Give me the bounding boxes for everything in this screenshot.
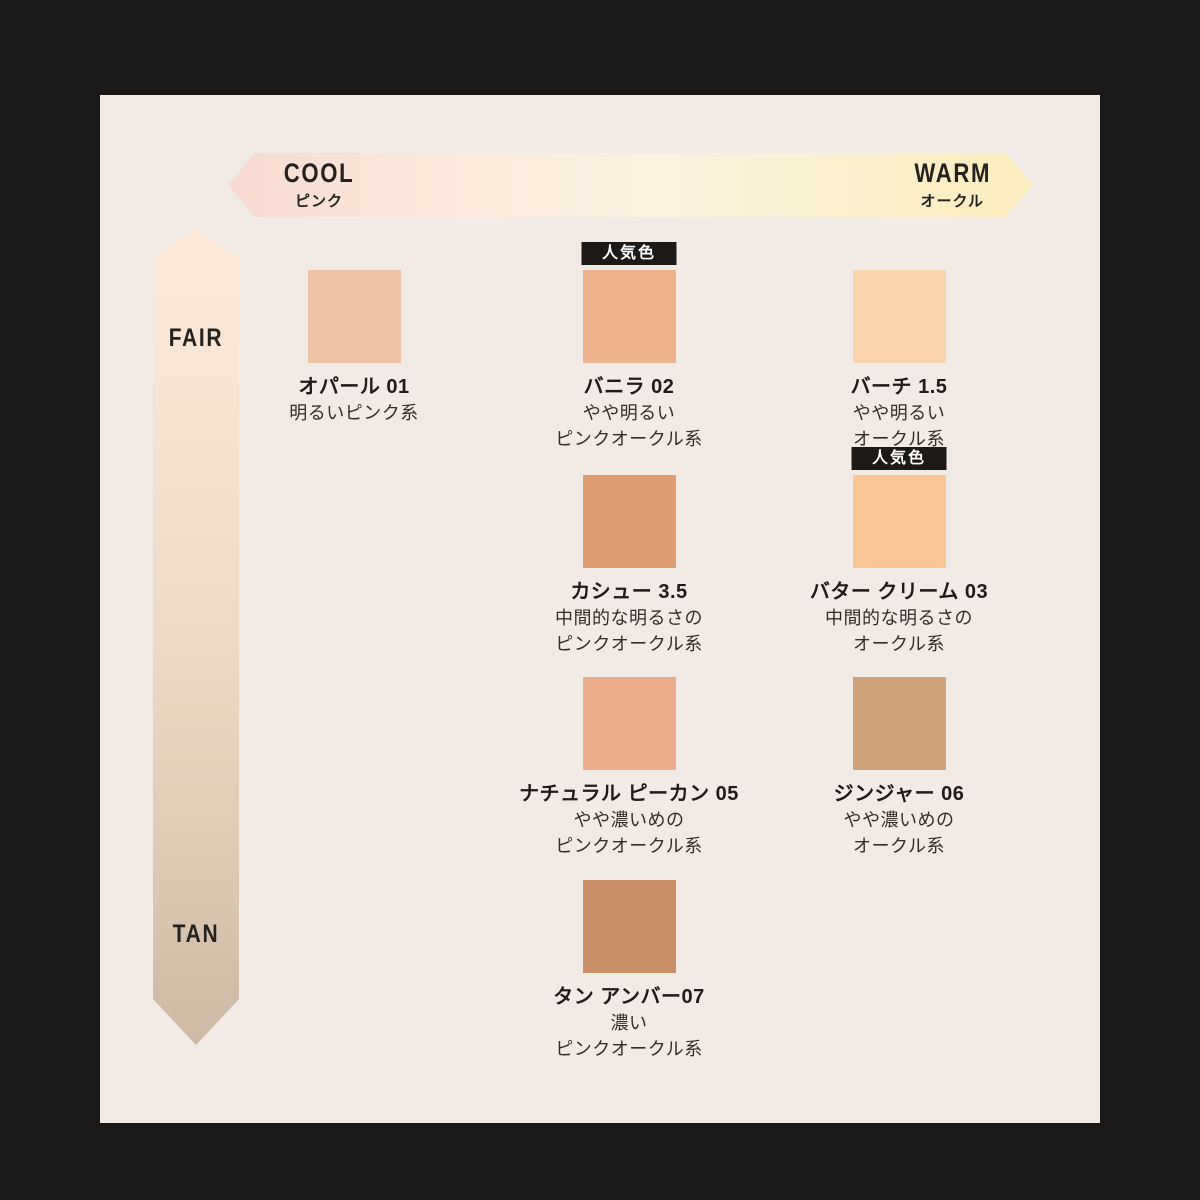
shade-name: ナチュラル ピーカン 05 [489, 781, 769, 807]
shade-desc-line: 中間的な明るさの [489, 605, 769, 631]
shade-desc-line: 明るいピンク系 [214, 400, 494, 426]
shade-desc-line: やや明るい [759, 400, 1039, 426]
shade-desc-line: 濃い [489, 1010, 769, 1036]
shade-desc-line: ピンクオークル系 [489, 631, 769, 657]
cool-sublabel: ピンク [276, 190, 362, 211]
shade-desc-line: オークル系 [759, 833, 1039, 859]
shade-name: バター クリーム 03 [759, 579, 1039, 605]
shade-swatch [583, 880, 676, 973]
shade-desc-line: オークル系 [759, 631, 1039, 657]
shade-desc-line: ピンクオークル系 [489, 426, 769, 452]
cool-axis-label: COOL ピンク [276, 159, 362, 211]
shade-cell-natural-pecan-05: ナチュラル ピーカン 05 やや濃いめの ピンクオークル系 [489, 677, 769, 859]
shade-name: オパール 01 [214, 374, 494, 400]
shade-name: タン アンバー07 [489, 984, 769, 1010]
warm-sublabel: オークル [906, 190, 999, 211]
shade-cell-butter-cream-03: 人気色 バター クリーム 03 中間的な明るさの オークル系 [759, 475, 1039, 657]
shade-cell-tan-amber-07: タン アンバー07 濃い ピンクオークル系 [489, 880, 769, 1062]
shade-desc-line: 中間的な明るさの [759, 605, 1039, 631]
shade-swatch [308, 270, 401, 363]
shade-cell-cashew-3-5: カシュー 3.5 中間的な明るさの ピンクオークル系 [489, 475, 769, 657]
shade-cell-vanilla-02: 人気色 バニラ 02 やや明るい ピンクオークル系 [489, 270, 769, 452]
shade-swatch [853, 677, 946, 770]
tan-label: TAN [160, 920, 232, 949]
shade-swatch [853, 475, 946, 568]
shade-name: ジンジャー 06 [759, 781, 1039, 807]
shade-desc-line: ピンクオークル系 [489, 833, 769, 859]
shade-desc-line: やや濃いめの [489, 807, 769, 833]
shade-name: バーチ 1.5 [759, 374, 1039, 400]
shade-desc-line: ピンクオークル系 [489, 1036, 769, 1062]
shade-swatch [583, 677, 676, 770]
shade-desc-line: やや明るい [489, 400, 769, 426]
shade-chart-image: { "panel": { "background": "#f1eae5", "f… [0, 0, 1200, 1200]
shade-swatch [853, 270, 946, 363]
shade-swatch [583, 270, 676, 363]
warm-label: WARM [914, 159, 991, 187]
shade-name: カシュー 3.5 [489, 579, 769, 605]
popular-color-badge: 人気色 [852, 447, 947, 470]
shade-cell-opal-01: オパール 01 明るいピンク系 [214, 270, 494, 426]
shade-desc-line: やや濃いめの [759, 807, 1039, 833]
undertone-axis-arrow: COOL ピンク WARM オークル [228, 153, 1033, 217]
shade-chart-panel: COOL ピンク WARM オークル FAIR TAN オパール 01 明るいピ… [100, 95, 1100, 1123]
popular-color-badge: 人気色 [582, 242, 677, 265]
shade-cell-birch-1-5: バーチ 1.5 やや明るい オークル系 [759, 270, 1039, 452]
shade-swatch [583, 475, 676, 568]
warm-axis-label: WARM オークル [906, 159, 999, 211]
cool-label: COOL [284, 159, 355, 187]
shade-cell-ginger-06: ジンジャー 06 やや濃いめの オークル系 [759, 677, 1039, 859]
shade-name: バニラ 02 [489, 374, 769, 400]
